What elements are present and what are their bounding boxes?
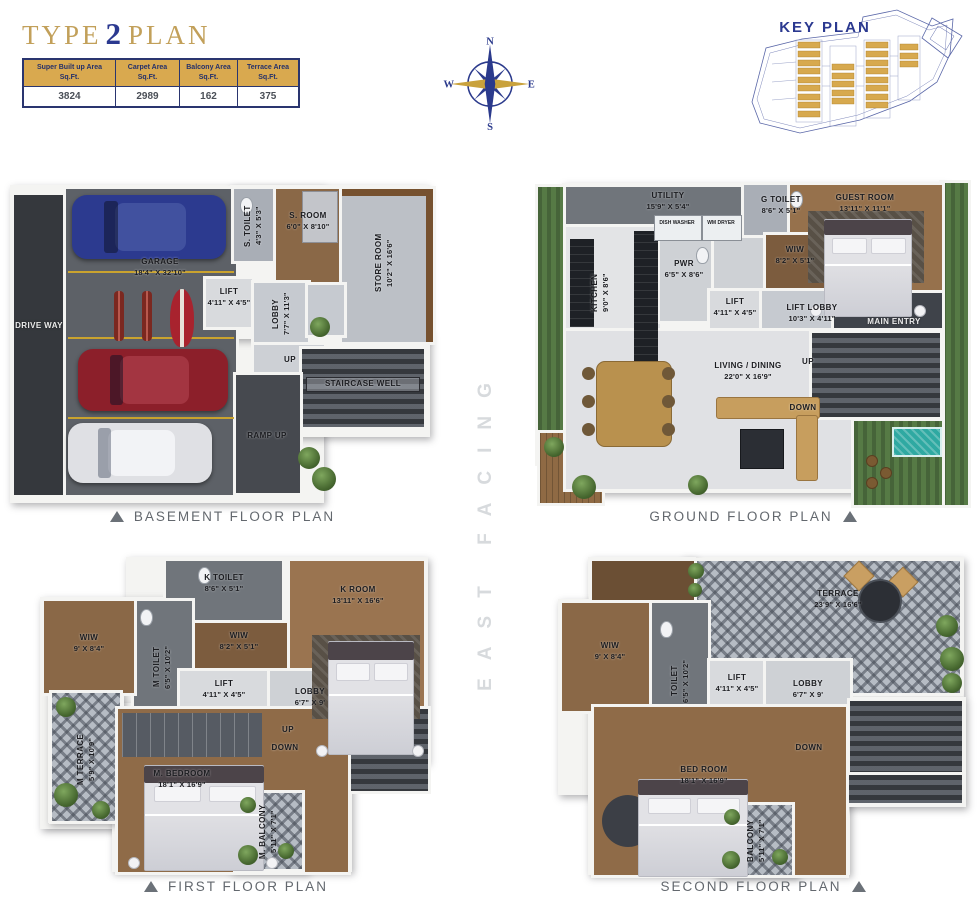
title-word-plan: PLAN <box>128 20 211 50</box>
m-balcony-label: M. BALCONY5'11" X 7'1" <box>258 797 279 867</box>
wiw-k-label: WIW8'2" X 5'1" <box>196 631 282 652</box>
bicycle <box>114 291 124 341</box>
triangle-up-icon <box>852 881 866 892</box>
bed-room-label: BED ROOM18'1" X 16'9" <box>640 765 768 786</box>
brochure-page: TYPE2PLAN Super Built up AreaSq.Ft. Carp… <box>0 0 977 900</box>
ramp-up-label: RAMP UP <box>232 431 302 442</box>
wiw-m-label: WIW9' X 8'4" <box>52 633 126 654</box>
s-toilet-label: S. TOILET4'3" X 5'3" <box>243 193 264 259</box>
s-room-label: S. ROOM6'0" X 8'10" <box>272 211 344 232</box>
garage-label: GARAGE18'4" X 32'10" <box>105 257 215 278</box>
garden-strip <box>538 187 564 463</box>
second-plan-caption: SECOND FLOOR PLAN <box>558 879 968 894</box>
plant <box>56 697 76 717</box>
triangle-up-icon <box>144 881 158 892</box>
bed-pillow <box>871 238 906 253</box>
ground-plan-caption: GROUND FLOOR PLAN <box>538 509 968 524</box>
plant <box>724 809 740 825</box>
m-bedroom-label: M. BEDROOM18'1" X 16'9" <box>120 769 244 790</box>
plant <box>722 851 740 869</box>
compass-east-label: E <box>528 79 535 90</box>
title-plan-number: 2 <box>106 16 125 51</box>
guest-room-label: GUEST ROOM13'11" X 11'1" <box>804 193 926 214</box>
parking-line <box>68 417 234 419</box>
dish-washer-appliance <box>654 215 702 241</box>
garden-seat <box>866 477 878 489</box>
lobby-label: LOBBY6'7" X 9' <box>280 687 340 708</box>
motorbike <box>170 289 194 347</box>
plant <box>238 845 258 865</box>
plant <box>772 849 788 865</box>
compass-rose-icon: N E S W <box>442 36 538 132</box>
plant <box>312 467 336 491</box>
area-table-header: Super Built up AreaSq.Ft. <box>24 60 116 86</box>
floor-plan-ground: UTILITY15'9" X 5'4" KITCHEN9'0" X 8'6" D… <box>538 183 968 508</box>
floor-plan-second: TERRACE23'9" X 16'6" WIW9' X 8'4" TOILET… <box>558 557 968 877</box>
side-table <box>316 745 328 757</box>
plant <box>298 447 320 469</box>
area-table-header: Terrace AreaSq.Ft. <box>238 60 298 86</box>
dish-washer-label: DISH WASHER <box>655 220 699 227</box>
bed-headboard <box>328 642 414 660</box>
title-word-type: TYPE <box>22 20 102 50</box>
kitchen-island <box>634 231 658 379</box>
key-plan-highlighted-units <box>798 42 918 117</box>
area-table-header: Carpet AreaSq.Ft. <box>116 60 180 86</box>
up-label: UP <box>274 355 306 366</box>
coffee-table <box>740 429 784 469</box>
plant <box>310 317 330 337</box>
side-table <box>412 745 424 757</box>
floor-plan-first: K TOILET8'6" X 5'1" WIW8'2" X 5'1" K ROO… <box>40 557 432 872</box>
compass-west-label: W <box>443 79 454 90</box>
plant <box>544 437 564 457</box>
page-title: TYPE2PLAN <box>22 16 211 52</box>
floor-plan-basement: DRIVE WAY GARAGE18'4" X 32'10" S. TOILET… <box>10 185 435 505</box>
area-value: 3824 <box>24 86 116 106</box>
side-table <box>914 305 926 317</box>
k-toilet-label: K TOILET8'6" X 5'1" <box>184 573 264 594</box>
bed-pillow <box>336 663 370 681</box>
down-label: DOWN <box>784 743 834 754</box>
sofa <box>796 415 818 481</box>
lobby-label: LOBBY6'7" X 9' <box>776 679 840 700</box>
plant <box>688 563 704 579</box>
down-label: DOWN <box>262 743 308 754</box>
triangle-up-icon <box>110 511 124 522</box>
lift-label: LIFT4'11" X 4'5" <box>704 297 766 318</box>
wiw-label: WIW9' X 8'4" <box>574 641 646 662</box>
bed-pillow <box>832 238 867 253</box>
triangle-up-icon <box>843 511 857 522</box>
key-plan-map: KEY PLAN <box>742 6 969 148</box>
area-value: 375 <box>238 86 298 106</box>
wm-dryer-label: WM DRYER <box>702 220 740 227</box>
pwr-label: PWR6'5" X 8'6" <box>650 259 718 280</box>
washer-dryer-appliance <box>702 215 742 241</box>
plant <box>942 673 962 693</box>
down-label: DOWN <box>780 403 826 414</box>
bicycle <box>142 291 152 341</box>
up-label: UP <box>272 725 304 736</box>
white-car <box>68 423 212 483</box>
garden-seat <box>866 455 878 467</box>
area-value: 2989 <box>116 86 180 106</box>
dining-chairs <box>582 367 595 380</box>
m-terrace-label: M TERRACE5'9" X 10'9" <box>76 713 97 805</box>
area-value: 162 <box>180 86 238 106</box>
area-table-header: Balcony AreaSq.Ft. <box>180 60 238 86</box>
terrace-label: TERRACE23'9" X 16'6" <box>770 589 906 610</box>
dining-table <box>596 361 672 447</box>
red-car <box>78 349 228 411</box>
area-table: Super Built up AreaSq.Ft. Carpet AreaSq.… <box>22 58 300 108</box>
key-plan-title: KEY PLAN <box>779 19 871 36</box>
basement-plan-caption: BASEMENT FLOOR PLAN <box>10 509 435 524</box>
lobby-label: LOBBY7'7" X 11'3" <box>271 285 292 343</box>
plant <box>54 783 78 807</box>
compass-north-label: N <box>486 37 494 48</box>
bed-pillow <box>648 798 691 813</box>
wiw-label: WIW8'2" X 5'1" <box>764 245 826 266</box>
staircase-area <box>812 333 940 417</box>
lift-lobby-label: LIFT LOBBY10'3" X 4'11" <box>774 303 850 324</box>
lift-label: LIFT4'11" X 4'5" <box>186 679 262 700</box>
main-entry-label: MAIN ENTRY <box>852 317 936 328</box>
toilet-label: TOILET6'5" X 10'2" <box>670 639 691 723</box>
water-feature <box>892 427 942 457</box>
plant <box>688 583 702 597</box>
bed <box>328 641 414 755</box>
store-room-label: STORE ROOM10'2" X 16'6" <box>374 211 395 315</box>
staircase-well-label: STAIRCASE WELL <box>306 377 420 392</box>
side-table <box>128 857 140 869</box>
toilet-fixture <box>660 621 673 638</box>
kitchen-label: KITCHEN9'0" X 8'6" <box>590 245 611 341</box>
wardrobe <box>122 713 262 757</box>
facing-direction-label: EAST FACING <box>475 338 499 718</box>
k-room-label: K ROOM13'11" X 16'6" <box>300 585 416 606</box>
balcony-label: BALCONY5'11" X 7'1" <box>746 809 767 873</box>
plant <box>940 647 964 671</box>
bed-pillow <box>374 663 408 681</box>
drive-way-area <box>14 195 66 495</box>
garden-strip <box>942 183 968 505</box>
plant <box>278 843 294 859</box>
bed-duvet <box>329 694 413 754</box>
lift-label: LIFT4'11" X 4'5" <box>706 673 768 694</box>
bed-headboard <box>824 220 912 235</box>
drive-way-label: DRIVE WAY <box>10 321 68 332</box>
lift-label: LIFT4'11" X 4'5" <box>200 287 258 308</box>
toilet-fixture <box>140 609 153 626</box>
m-toilet-label: M TOILET6'5" X 10'2" <box>152 625 173 709</box>
plant <box>936 615 958 637</box>
garden-seat <box>880 467 892 479</box>
plant <box>688 475 708 495</box>
staircase-area <box>850 701 962 777</box>
utility-label: UTILITY15'9" X 5'4" <box>616 191 720 212</box>
compass-south-label: S <box>487 122 493 132</box>
plant <box>572 475 596 499</box>
first-plan-caption: FIRST FLOOR PLAN <box>40 879 432 894</box>
blue-car <box>72 195 226 259</box>
up-label: UP <box>792 357 824 368</box>
plant <box>240 797 256 813</box>
